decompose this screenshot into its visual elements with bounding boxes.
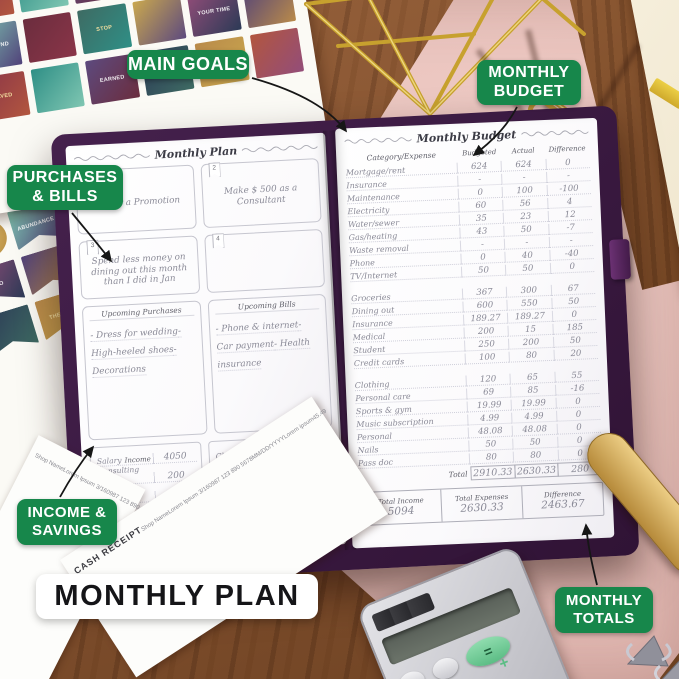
plan-page-title: Monthly Plan [154,144,237,161]
summary-difference-value: 2463.67 [541,498,585,512]
budget-difference: 185 [552,322,597,335]
col-budgeted: Budgeted [457,148,501,158]
upcoming-bills-title: Upcoming Bills [214,298,319,314]
budget-difference: 55 [554,370,599,383]
budget-budgeted: 250 [464,339,509,352]
budget-summary: Total Income 5094 Total Expenses 2630.33… [359,482,604,526]
receipt-line: Lorem Ipsum 3/16 [167,484,211,515]
callout-line: SAVINGS [32,522,102,540]
sticker [241,0,296,28]
budget-difference: - [548,235,593,248]
budget-actual: 19.99 [511,398,556,411]
sticker: ZERO [0,0,14,21]
sticker [0,304,39,357]
squiggle-decoration [74,152,150,163]
summary-expenses-value: 2630.33 [460,501,504,515]
budget-actual: 40 [504,250,549,263]
receipt-line: Shop Name [141,511,171,533]
receipt-line: 45.49 [312,408,328,421]
budget-difference: -40 [549,248,594,261]
budget-actual: 50 [503,224,548,237]
budget-actual: 200 [508,337,553,350]
budget-budgeted: 0 [457,187,502,200]
callout-line: MONTHLY [488,64,569,83]
list-item: - Phone & internet [215,320,298,335]
budget-budgeted: 189.27 [463,313,508,326]
receipt-line: Shop Name [34,453,65,473]
budget-actual: 80 [509,350,554,363]
budget-budgeted: 367 [462,287,507,300]
budget-budgeted: 50 [461,265,506,278]
pen-loop [609,239,631,280]
receipt-line: 0987 123 890 5678 [208,456,255,489]
budget-difference: 20 [553,348,598,361]
budget-actual: 80 [513,450,558,463]
goal-number-flag: 2 [208,162,221,178]
receipt-line: MM/DD/YYYY [251,435,286,461]
budget-budgeted: 48.08 [467,426,512,439]
callout-monthly-budget: MONTHLY BUDGET [477,60,581,105]
sticker: WAGE [69,0,124,4]
callout-income-savings: INCOME & SAVINGS [17,499,117,545]
goal-box: 2Make $ 500 as a Consultant [200,158,322,228]
receipt-line: Lorem Ipsum 3/16 [62,467,108,494]
budget-actual: 624 [501,159,546,172]
squiggle-decoration [344,136,411,146]
goal-number-flag: 4 [212,233,225,249]
budget-budgeted: - [457,174,502,187]
goal-number-flag: 3 [86,240,99,256]
budget-difference: 0 [551,309,596,322]
summary-income-value: 5094 [387,505,414,518]
budget-difference: -7 [548,222,593,235]
summary-difference: Difference 2463.67 [521,483,603,518]
budget-budgeted: 35 [458,213,503,226]
callout-line: MONTHLY [566,592,642,610]
budget-rows: Mortgage/rent6246240Insurance---Maintena… [346,155,603,469]
budget-budgeted: 80 [468,452,513,465]
sticker [22,12,77,63]
calculator-key [430,654,462,679]
budget-budgeted: 600 [462,300,507,313]
callout-main-goals: MAIN GOALS [127,50,249,79]
budget-actual: - [501,172,546,185]
goal-text: Make $ 500 as a Consultant [208,182,314,209]
budget-actual: 550 [507,298,552,311]
monthly-plan-banner: MONTHLY PLAN [36,574,318,619]
budget-actual: 56 [502,198,547,211]
budget-difference: 0 [549,261,594,274]
callout-purchases-bills: PURCHASES & BILLS [7,165,123,210]
budget-actual: 65 [510,372,555,385]
budget-difference: 50 [553,335,598,348]
budget-budgeted: 0 [460,252,505,265]
budget-difference: 0 [555,396,600,409]
sticker [30,62,85,113]
callout-line: BUDGET [494,83,565,102]
budget-actual: 85 [510,385,555,398]
sticker [132,0,187,46]
goal-box: 4 [204,229,325,293]
callout-line: PURCHASES [13,169,118,188]
upcoming-purchases-title: Upcoming Purchases [89,305,194,321]
budget-difference: 0 [556,409,601,422]
budget-difference: - [546,170,591,183]
summary-total-expenses: Total Expenses 2630.33 [440,486,522,521]
total-budgeted: 2910.33 [470,465,515,481]
budget-budgeted: 100 [464,352,509,365]
budget-actual: 50 [505,263,550,276]
col-difference: Difference [545,144,589,154]
sticker [249,28,304,79]
sticker: YOUR TIME [187,0,242,37]
callout-line: TOTALS [573,610,635,628]
budget-difference: 12 [547,209,592,222]
sticker [14,0,69,13]
budget-difference: 4 [547,196,592,209]
banner-text: MONTHLY PLAN [54,580,299,613]
budget-budgeted: - [460,239,505,252]
monthly-budget-page: Monthly Budget Category/Expense Budgeted… [335,118,614,549]
budget-actual: 48.08 [512,424,557,437]
sticker: THE MIND [0,21,22,72]
callout-monthly-totals: MONTHLY TOTALS [555,587,653,633]
budget-difference: 67 [550,283,595,296]
budget-budgeted: 43 [459,226,504,239]
budget-actual: 100 [502,185,547,198]
sticker: ZERO [0,259,25,312]
sticker: SAVED [0,71,30,122]
upcoming-purchases-box: Upcoming Purchases - Dress for wedding- … [82,300,207,440]
budget-budgeted: 19.99 [466,400,511,413]
money-column-header: Income [124,455,151,464]
budget-budgeted: 69 [466,387,511,400]
goal-box: 3Spend less money on dining out this mon… [78,236,199,300]
money-category: Salary [97,455,122,465]
budget-budgeted: 4.99 [467,413,512,426]
callout-line: & BILLS [32,188,98,207]
calculator-plus-key: + [497,654,512,674]
budget-budgeted: 200 [463,326,508,339]
budget-budgeted: 60 [458,200,503,213]
budget-actual: 4.99 [511,411,556,424]
budget-budgeted: 120 [465,374,510,387]
budget-actual: - [504,237,549,250]
budget-actual: 300 [506,285,551,298]
total-actual: 2630.33 [514,463,559,479]
squiggle-decoration [242,143,318,154]
col-actual: Actual [501,146,545,156]
budget-difference: 0 [545,157,590,170]
list-item: - Dress for wedding [90,327,178,343]
budget-difference: -16 [555,383,600,396]
calculator-key [396,668,428,679]
callout-line: INCOME & [28,504,107,522]
budget-budgeted: 624 [456,161,501,174]
sticker: STOP [77,3,132,54]
budget-difference: 0 [556,422,601,435]
budget-actual: 15 [508,324,553,337]
goal-text: Spend less money on dining out this mont… [86,251,192,289]
budget-total-label: Total [358,469,471,483]
budget-budgeted: 50 [468,439,513,452]
budget-difference: -100 [546,183,591,196]
budget-actual: 50 [512,437,557,450]
budget-page-title: Monthly Budget [416,128,516,145]
squiggle-decoration [521,128,588,138]
callout-main-goals-text: MAIN GOALS [128,54,248,75]
receipt-line: Lorem ipsum [283,417,315,441]
budget-actual: 23 [503,211,548,224]
product-photo-scene: ZEROWAGE$GOLDTHE MINDSTOP$SAVEDEARNEDNOW… [0,0,679,679]
budget-actual: 189.27 [507,311,552,324]
budget-difference: 50 [551,296,596,309]
